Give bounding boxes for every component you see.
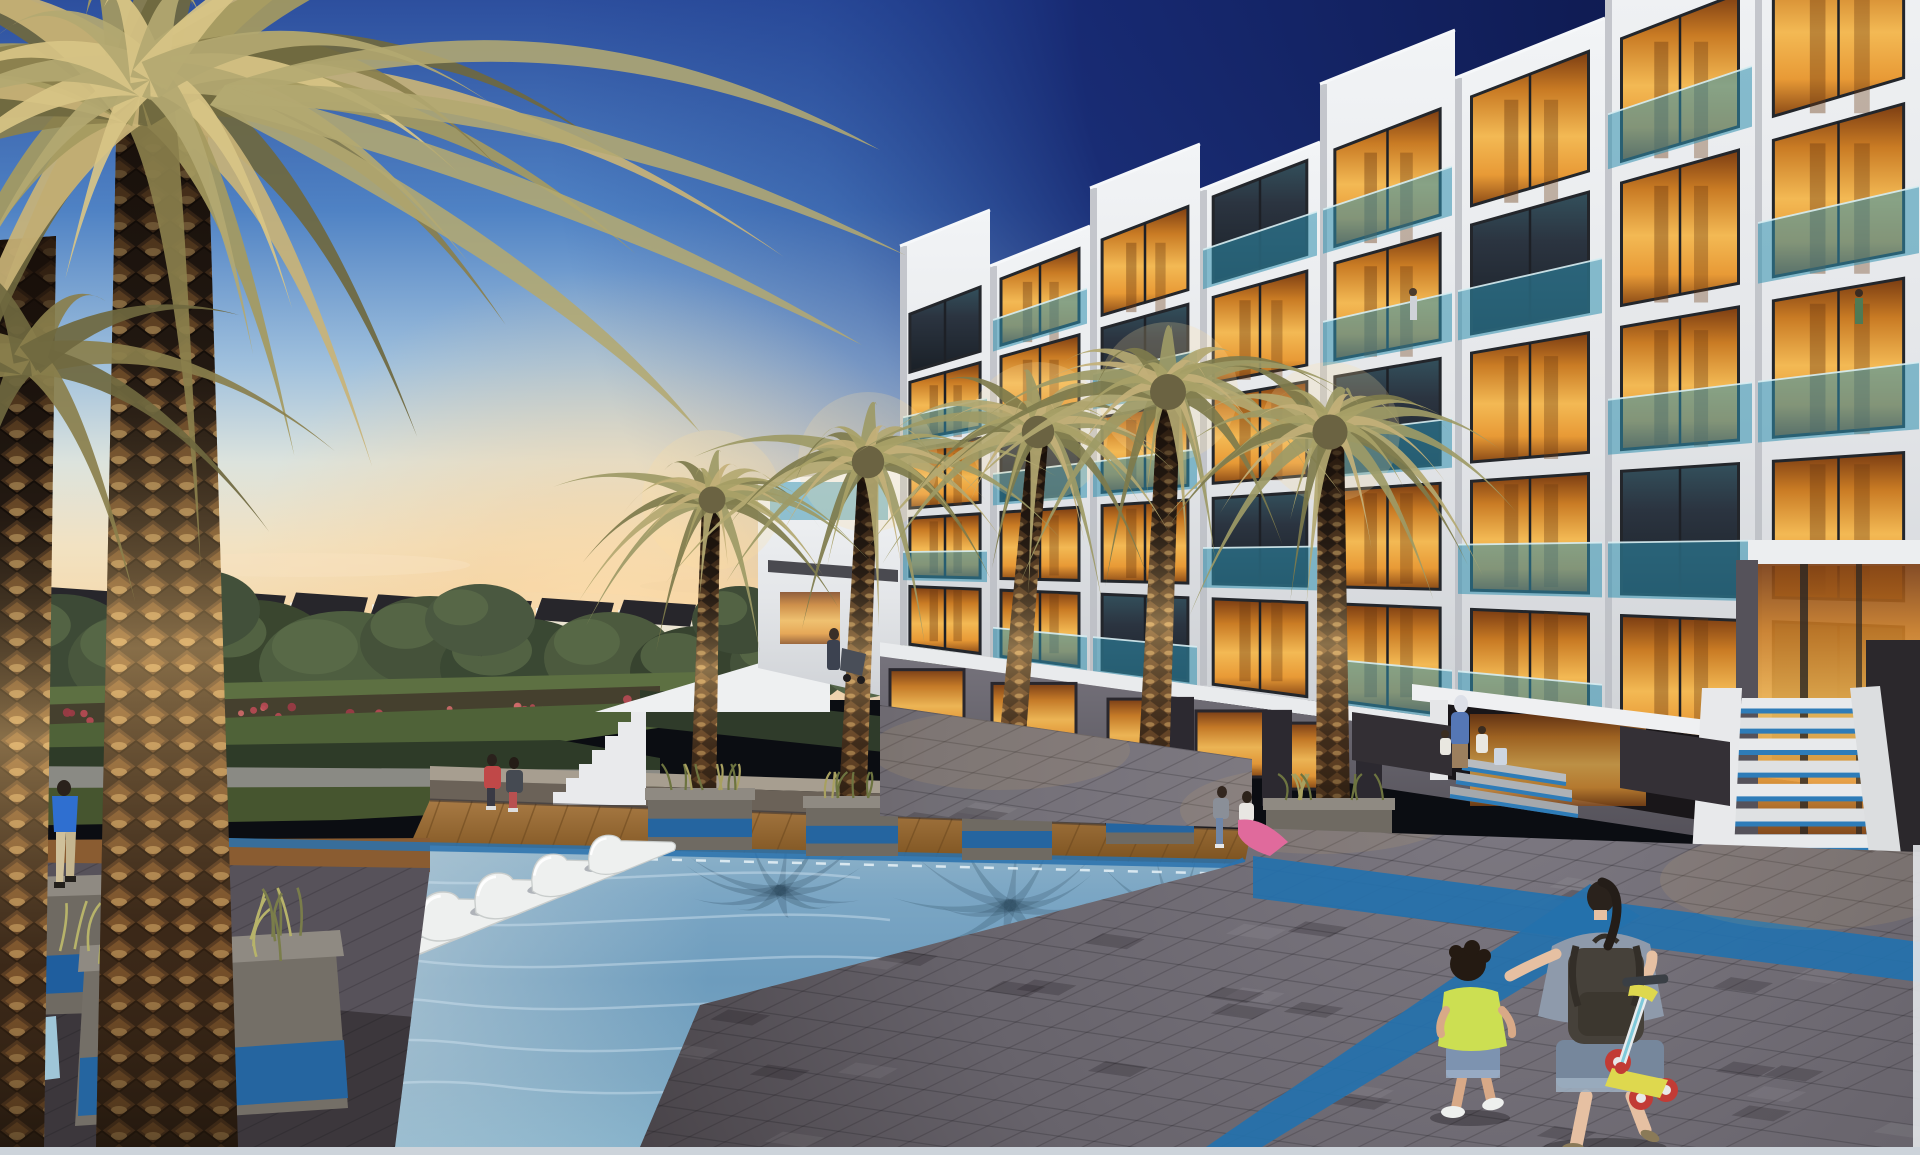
balcony-glass (903, 551, 987, 582)
curtain (1810, 0, 1826, 113)
right-edge-strip (1913, 845, 1920, 1147)
curtain (1364, 493, 1377, 583)
curtain (1239, 602, 1250, 681)
planter-blue-band (806, 826, 898, 844)
bottom-edge-strip (0, 1147, 1920, 1155)
curtain (1504, 100, 1518, 203)
balcony-glass (1608, 541, 1752, 601)
curtain (930, 589, 938, 641)
architectural-rendering (0, 0, 1920, 1155)
balcony-glass (1203, 546, 1317, 590)
balcony-glass (1458, 543, 1602, 598)
planter-blue-band (962, 831, 1052, 848)
planter-blue-band (648, 819, 752, 837)
curtain (1126, 243, 1136, 312)
curtain (1504, 356, 1518, 459)
curtain (1654, 186, 1668, 303)
